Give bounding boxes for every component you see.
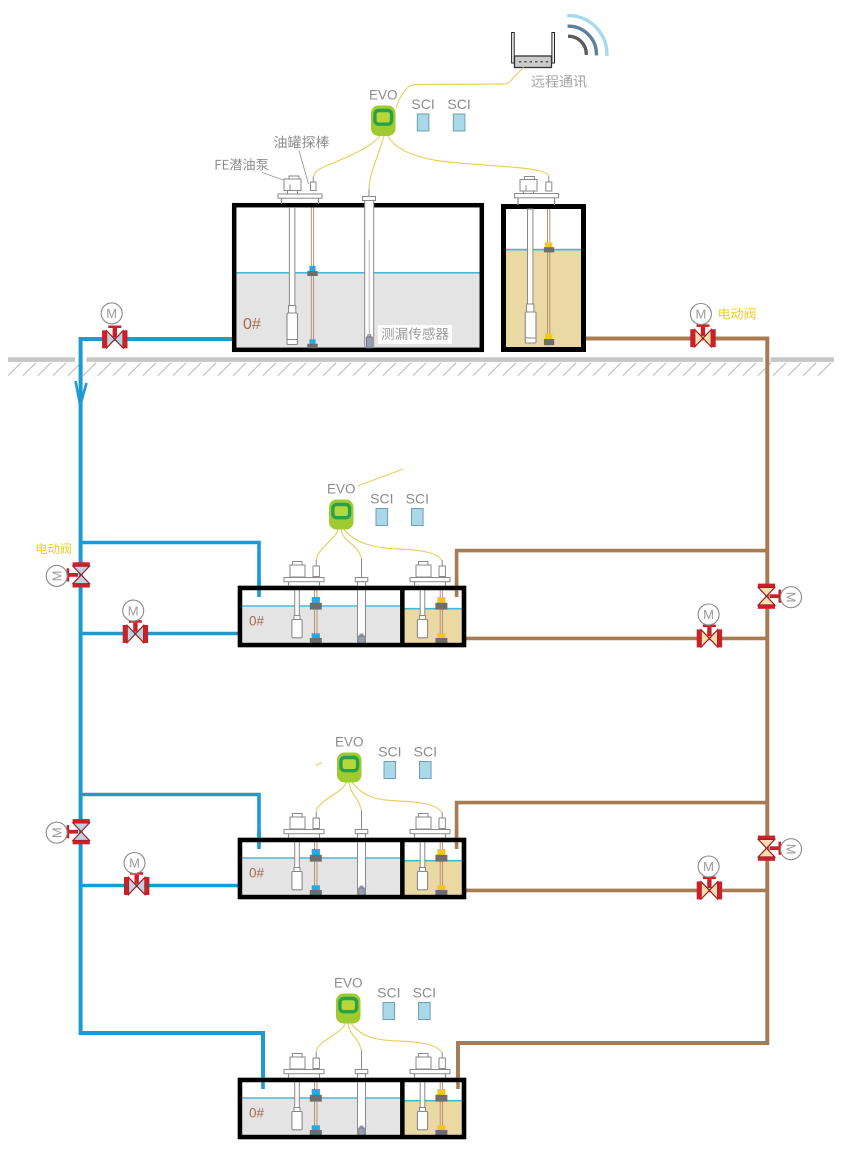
svg-text:M: M: [703, 859, 714, 874]
svg-text:SCI: SCI: [447, 96, 470, 112]
svg-text:M: M: [49, 827, 64, 838]
svg-text:EVO: EVO: [327, 482, 356, 497]
svg-text:0#: 0#: [249, 1106, 265, 1121]
svg-text:M: M: [783, 592, 798, 603]
svg-text:EVO: EVO: [334, 976, 363, 991]
svg-text:SCI: SCI: [406, 491, 429, 507]
svg-text:M: M: [129, 856, 140, 871]
svg-text:SCI: SCI: [377, 985, 400, 1001]
svg-text:EVO: EVO: [335, 735, 364, 750]
svg-text:0#: 0#: [243, 316, 261, 333]
svg-text:M: M: [703, 607, 714, 622]
svg-text:SCI: SCI: [378, 744, 401, 760]
svg-text:SCI: SCI: [414, 744, 437, 760]
svg-text:EVO: EVO: [369, 88, 398, 103]
svg-text:M: M: [106, 306, 117, 321]
svg-text:M: M: [695, 307, 706, 322]
svg-text:M: M: [783, 844, 798, 855]
svg-text:SCI: SCI: [370, 491, 393, 507]
svg-text:SCI: SCI: [413, 985, 436, 1001]
svg-text:0#: 0#: [249, 866, 265, 881]
svg-text:SCI: SCI: [411, 96, 434, 112]
svg-text:M: M: [49, 570, 64, 581]
svg-text:0#: 0#: [249, 614, 265, 629]
svg-text:M: M: [128, 603, 139, 618]
